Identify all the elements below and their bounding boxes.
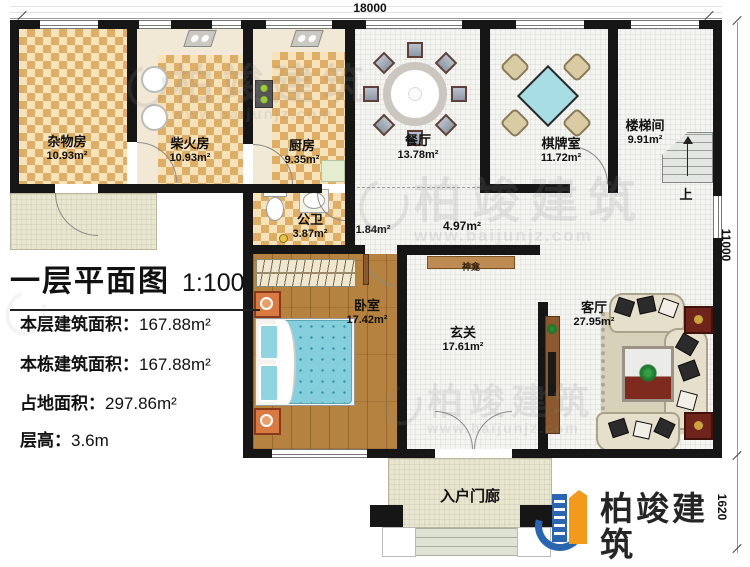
porch-steps bbox=[403, 528, 525, 556]
room-label-living: 客厅 27.95m² bbox=[562, 300, 626, 329]
bedroom-door-leaf bbox=[363, 254, 369, 285]
stairs-up-label: 上 bbox=[676, 185, 696, 204]
brand-url: www.baijunjz.com bbox=[600, 564, 743, 567]
room-name: 棋牌室 bbox=[523, 136, 599, 152]
dining-chair bbox=[407, 42, 423, 58]
room-label-stairwell: 楼梯间 9.91m² bbox=[607, 118, 683, 147]
stat-label: 层高： bbox=[20, 431, 71, 450]
window bbox=[212, 20, 241, 29]
dimension-label-top: 18000 bbox=[328, 1, 412, 15]
dimension-line-top bbox=[10, 18, 722, 19]
dining-chair bbox=[363, 86, 379, 102]
plan-title-block: 一层平面图1:100 bbox=[10, 256, 260, 311]
stairs-up-text: 上 bbox=[679, 187, 692, 202]
stat-value: 167.88m² bbox=[139, 355, 211, 374]
room-area: 13.78m² bbox=[386, 149, 450, 162]
stat-storey-height: 层高：3.6m bbox=[20, 426, 109, 451]
wall-segment bbox=[127, 29, 137, 142]
porch-label: 入户门廊 bbox=[423, 487, 517, 506]
brand-name: 柏竣建筑 bbox=[600, 491, 743, 564]
wall-segment bbox=[243, 245, 365, 254]
wall-segment bbox=[243, 184, 253, 458]
brand-logo-icon bbox=[533, 487, 597, 561]
shrine-label: 神龛 bbox=[462, 262, 480, 272]
room-name: 玄关 bbox=[431, 325, 495, 341]
range-hood-icon bbox=[290, 30, 324, 47]
wall-segment bbox=[243, 449, 272, 458]
room-area: 10.93m² bbox=[35, 150, 99, 163]
wall-segment bbox=[480, 184, 570, 193]
window bbox=[366, 20, 462, 29]
side-table-dot bbox=[694, 421, 703, 430]
room-name: 楼梯间 bbox=[607, 118, 683, 134]
nightstand-lamp bbox=[260, 414, 273, 427]
room-label-dining: 餐厅 13.78m² bbox=[386, 133, 450, 162]
bed-pillow bbox=[259, 364, 279, 402]
stat-floor-area: 本层建筑面积：167.88m² bbox=[20, 310, 211, 335]
wall-segment bbox=[10, 184, 55, 193]
room-name: 客厅 bbox=[562, 300, 626, 316]
tv-icon bbox=[548, 352, 556, 396]
stairs-up-arrowhead bbox=[683, 136, 693, 144]
room-name: 公卫 bbox=[280, 212, 340, 228]
room-name: 柴火房 bbox=[158, 136, 222, 152]
window bbox=[516, 20, 584, 29]
window bbox=[272, 449, 367, 458]
dimension-line-right bbox=[737, 22, 738, 458]
stove-icon bbox=[255, 80, 273, 108]
room-label-firewood: 柴火房 10.93m² bbox=[158, 136, 222, 165]
wall-segment bbox=[397, 245, 540, 255]
sofa-pillow bbox=[633, 420, 653, 439]
stat-footprint-area: 占地面积：297.86m² bbox=[20, 389, 177, 414]
room-area: 9.35m² bbox=[271, 154, 333, 167]
stat-label: 本层建筑面积： bbox=[20, 315, 139, 334]
stat-label: 占地面积： bbox=[20, 394, 105, 413]
basin bbox=[141, 66, 168, 93]
passage-area-text: 4.97m² bbox=[443, 219, 481, 233]
room-area: 9.91m² bbox=[607, 134, 683, 147]
window bbox=[139, 20, 171, 29]
coffee-table-plant bbox=[639, 364, 657, 382]
stat-label: 本栋建筑面积： bbox=[20, 355, 139, 374]
logo-building-blue bbox=[552, 494, 567, 542]
shrine-console: 神龛 bbox=[427, 256, 515, 269]
stat-building-area: 本栋建筑面积：167.88m² bbox=[20, 350, 211, 375]
porch-column bbox=[370, 505, 403, 527]
room-name: 卧室 bbox=[335, 298, 399, 314]
window bbox=[40, 20, 98, 29]
stat-value: 167.88m² bbox=[139, 315, 211, 334]
passage-area-hall: 4.97m² bbox=[432, 216, 492, 235]
room-name: 餐厅 bbox=[386, 133, 450, 149]
room-area: 11.72m² bbox=[523, 152, 599, 165]
plan-scale: 1:100 bbox=[182, 269, 245, 297]
plant-icon bbox=[547, 324, 557, 334]
wall-segment bbox=[367, 449, 435, 458]
brand-logo: 柏竣建筑 www.baijunjz.com bbox=[533, 485, 743, 563]
wall-segment bbox=[512, 449, 722, 458]
stairs-up-arrow bbox=[687, 142, 688, 176]
wall-segment bbox=[608, 29, 618, 193]
room-name: 厨房 bbox=[271, 138, 333, 154]
room-area: 3.87m² bbox=[280, 228, 340, 241]
room-label-bathroom: 公卫 3.87m² bbox=[280, 212, 340, 241]
room-label-storage: 杂物房 10.93m² bbox=[35, 134, 99, 163]
logo-building-orange bbox=[569, 490, 587, 544]
passage-area-text: 1.84m² bbox=[356, 224, 391, 236]
wardrobe-rod bbox=[256, 272, 356, 274]
room-area: 17.42m² bbox=[335, 314, 399, 327]
basin bbox=[141, 104, 168, 131]
room-area: 10.93m² bbox=[158, 152, 222, 165]
wall-segment bbox=[243, 29, 253, 144]
floor-plan-canvas: 18000 11000 1620 bbox=[0, 0, 750, 567]
wall-segment bbox=[10, 20, 19, 193]
wall-segment bbox=[98, 184, 322, 193]
dining-opening-dashed-line bbox=[357, 187, 480, 188]
room-area: 27.95m² bbox=[562, 316, 626, 329]
stat-value: 3.6m bbox=[71, 431, 109, 450]
wall-segment bbox=[397, 245, 407, 458]
bed-pillow bbox=[259, 324, 279, 360]
room-name: 杂物房 bbox=[35, 134, 99, 150]
side-table-dot bbox=[694, 315, 703, 324]
porch-label-text: 入户门廊 bbox=[440, 488, 500, 505]
dining-chair bbox=[451, 86, 467, 102]
range-hood-icon bbox=[183, 30, 217, 47]
window bbox=[266, 20, 332, 29]
plan-title: 一层平面图 bbox=[10, 265, 170, 298]
wall-segment bbox=[480, 29, 490, 184]
porch-column-base bbox=[382, 527, 416, 557]
dining-table-center bbox=[408, 87, 422, 101]
room-label-kitchen: 厨房 9.35m² bbox=[271, 138, 333, 167]
room-label-foyer: 玄关 17.61m² bbox=[431, 325, 495, 354]
dimension-label-right: 11000 bbox=[719, 215, 733, 275]
window bbox=[631, 20, 699, 29]
room-area: 17.61m² bbox=[431, 341, 495, 354]
room-label-bedroom: 卧室 17.42m² bbox=[335, 298, 399, 327]
room-label-mahjong: 棋牌室 11.72m² bbox=[523, 136, 599, 165]
passage-area-small: 1.84m² bbox=[346, 219, 400, 238]
stat-value: 297.86m² bbox=[105, 394, 177, 413]
nightstand-lamp bbox=[260, 297, 273, 310]
